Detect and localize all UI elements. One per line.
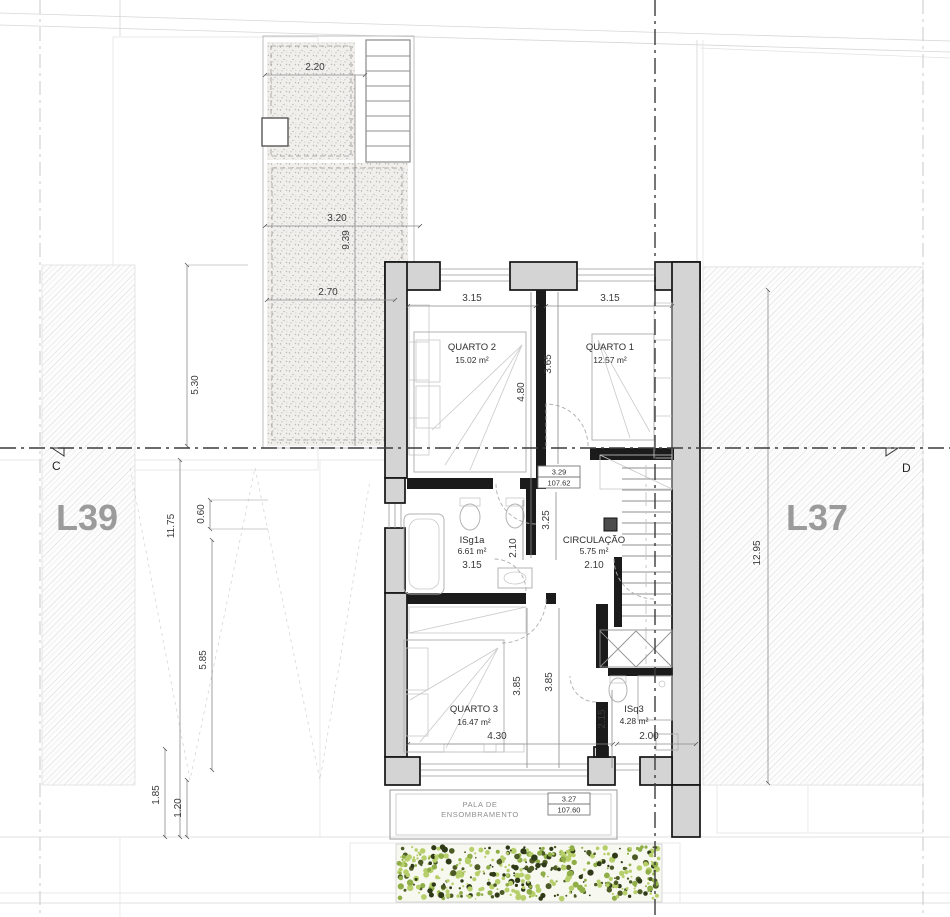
dim-quarto2-depth: 4.80 xyxy=(516,382,527,402)
hedge xyxy=(396,844,662,902)
dim-left-upper: 5.30 xyxy=(190,375,201,395)
dim-terrace-length: 9.39 xyxy=(341,230,352,250)
floor-plan-canvas: PALA DE ENSOMBRAMENTO 2.20 3.20 2.70 9.3… xyxy=(0,0,950,917)
level-lower-value: 3.27 xyxy=(562,795,577,804)
quarto3-area: 16.47 m² xyxy=(457,717,491,727)
dim-terrace-mid: 3.20 xyxy=(327,213,347,224)
dim-left-total: 11.75 xyxy=(166,513,177,538)
level-lower-elevation: 107.60 xyxy=(558,806,581,815)
lot-label-l39: L39 xyxy=(56,497,118,538)
dim-quarto1-width: 3.15 xyxy=(600,293,620,304)
quarto2-area: 15.02 m² xyxy=(455,355,489,365)
lot-label-l37: L37 xyxy=(786,497,848,538)
isq3-label: ISq3 xyxy=(624,704,644,715)
dim-quarto1-depth: 3.65 xyxy=(543,354,554,374)
level-marker-upper: 3.29 107.62 xyxy=(538,466,580,488)
circulacao-label: CIRCULAÇÃO xyxy=(563,535,625,546)
dim-hall-lower: 3.85 xyxy=(544,672,555,692)
dim-terrace-top: 2.20 xyxy=(305,62,325,73)
dim-hall-niche: 2.10 xyxy=(508,538,519,558)
dim-rear-a: 1.85 xyxy=(151,785,162,805)
isg1a-area: 6.61 m² xyxy=(458,546,487,556)
dim-quarto3-depth: 3.85 xyxy=(512,676,523,696)
dim-quarto3-width: 4.30 xyxy=(487,731,507,742)
isq3-area: 4.28 m² xyxy=(620,716,649,726)
dim-terrace-low: 2.70 xyxy=(318,287,338,298)
quarto3-label: QUARTO 3 xyxy=(450,704,498,715)
dim-left-lower: 5.85 xyxy=(198,650,209,670)
section-label-c: C xyxy=(52,459,61,473)
dim-isq3-depth: 2.15 xyxy=(597,709,608,729)
dim-quarto2-width: 3.15 xyxy=(462,293,482,304)
pala-label-line2: ENSOMBRAMENTO xyxy=(441,810,519,819)
quarto2-label: QUARTO 2 xyxy=(448,342,496,353)
pala-label-line1: PALA DE xyxy=(463,800,498,809)
section-label-d: D xyxy=(902,461,911,475)
dim-isg1a-width: 3.15 xyxy=(462,560,482,571)
dim-left-offset: 0.60 xyxy=(196,504,207,524)
exterior-stair xyxy=(366,40,410,162)
level-marker-lower: 3.27 107.60 xyxy=(548,793,590,815)
level-upper-value: 3.29 xyxy=(552,468,567,477)
quarto1-area: 12.57 m² xyxy=(593,355,627,365)
dim-hall-upper: 3.25 xyxy=(541,510,552,530)
dim-circulacao-width: 2.10 xyxy=(584,560,604,571)
isg1a-label: ISg1a xyxy=(460,535,486,546)
dim-rear-b: 1.20 xyxy=(173,798,184,818)
dim-right-total: 12.95 xyxy=(752,540,763,565)
dim-isq3-width: 2.00 xyxy=(639,731,659,742)
floor-plan-page: PALA DE ENSOMBRAMENTO 2.20 3.20 2.70 9.3… xyxy=(0,0,950,917)
level-upper-elevation: 107.62 xyxy=(548,479,571,488)
circulacao-area: 5.75 m² xyxy=(580,546,609,556)
terrace-post xyxy=(262,118,288,146)
house xyxy=(385,262,700,837)
quarto1-label: QUARTO 1 xyxy=(586,342,634,353)
